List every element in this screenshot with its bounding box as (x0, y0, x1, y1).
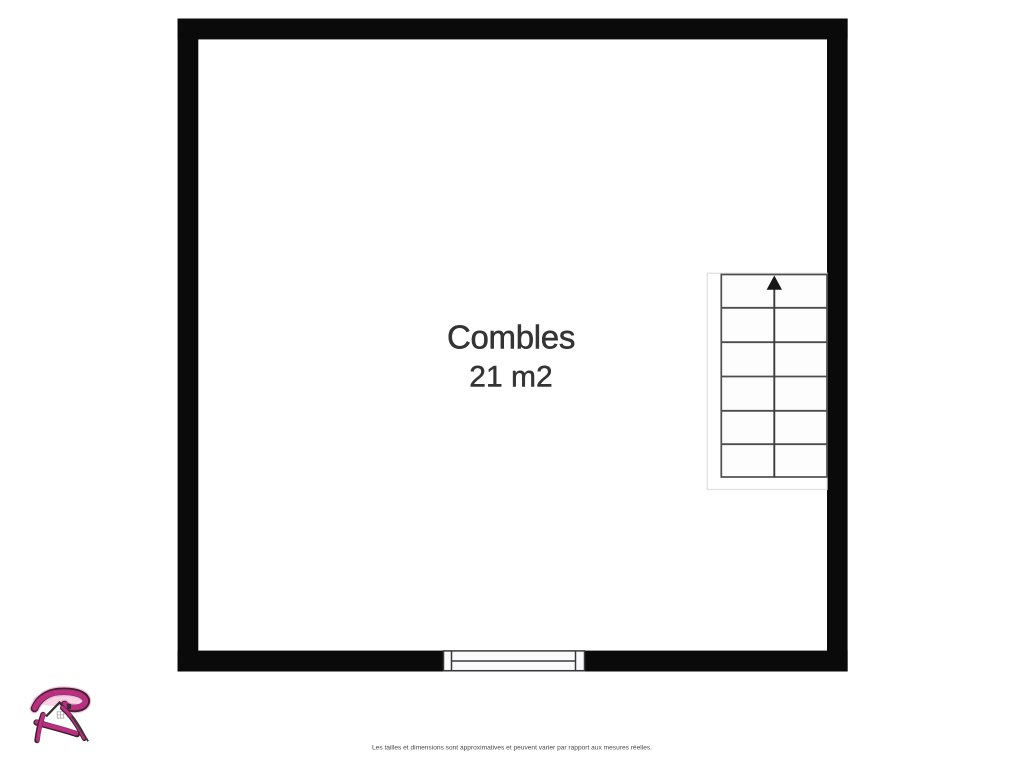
svg-text:Les tailles et dimensions sont: Les tailles et dimensions sont approxima… (372, 745, 652, 752)
svg-text:Combles: Combles (447, 318, 575, 355)
svg-text:21 m2: 21 m2 (469, 361, 552, 394)
